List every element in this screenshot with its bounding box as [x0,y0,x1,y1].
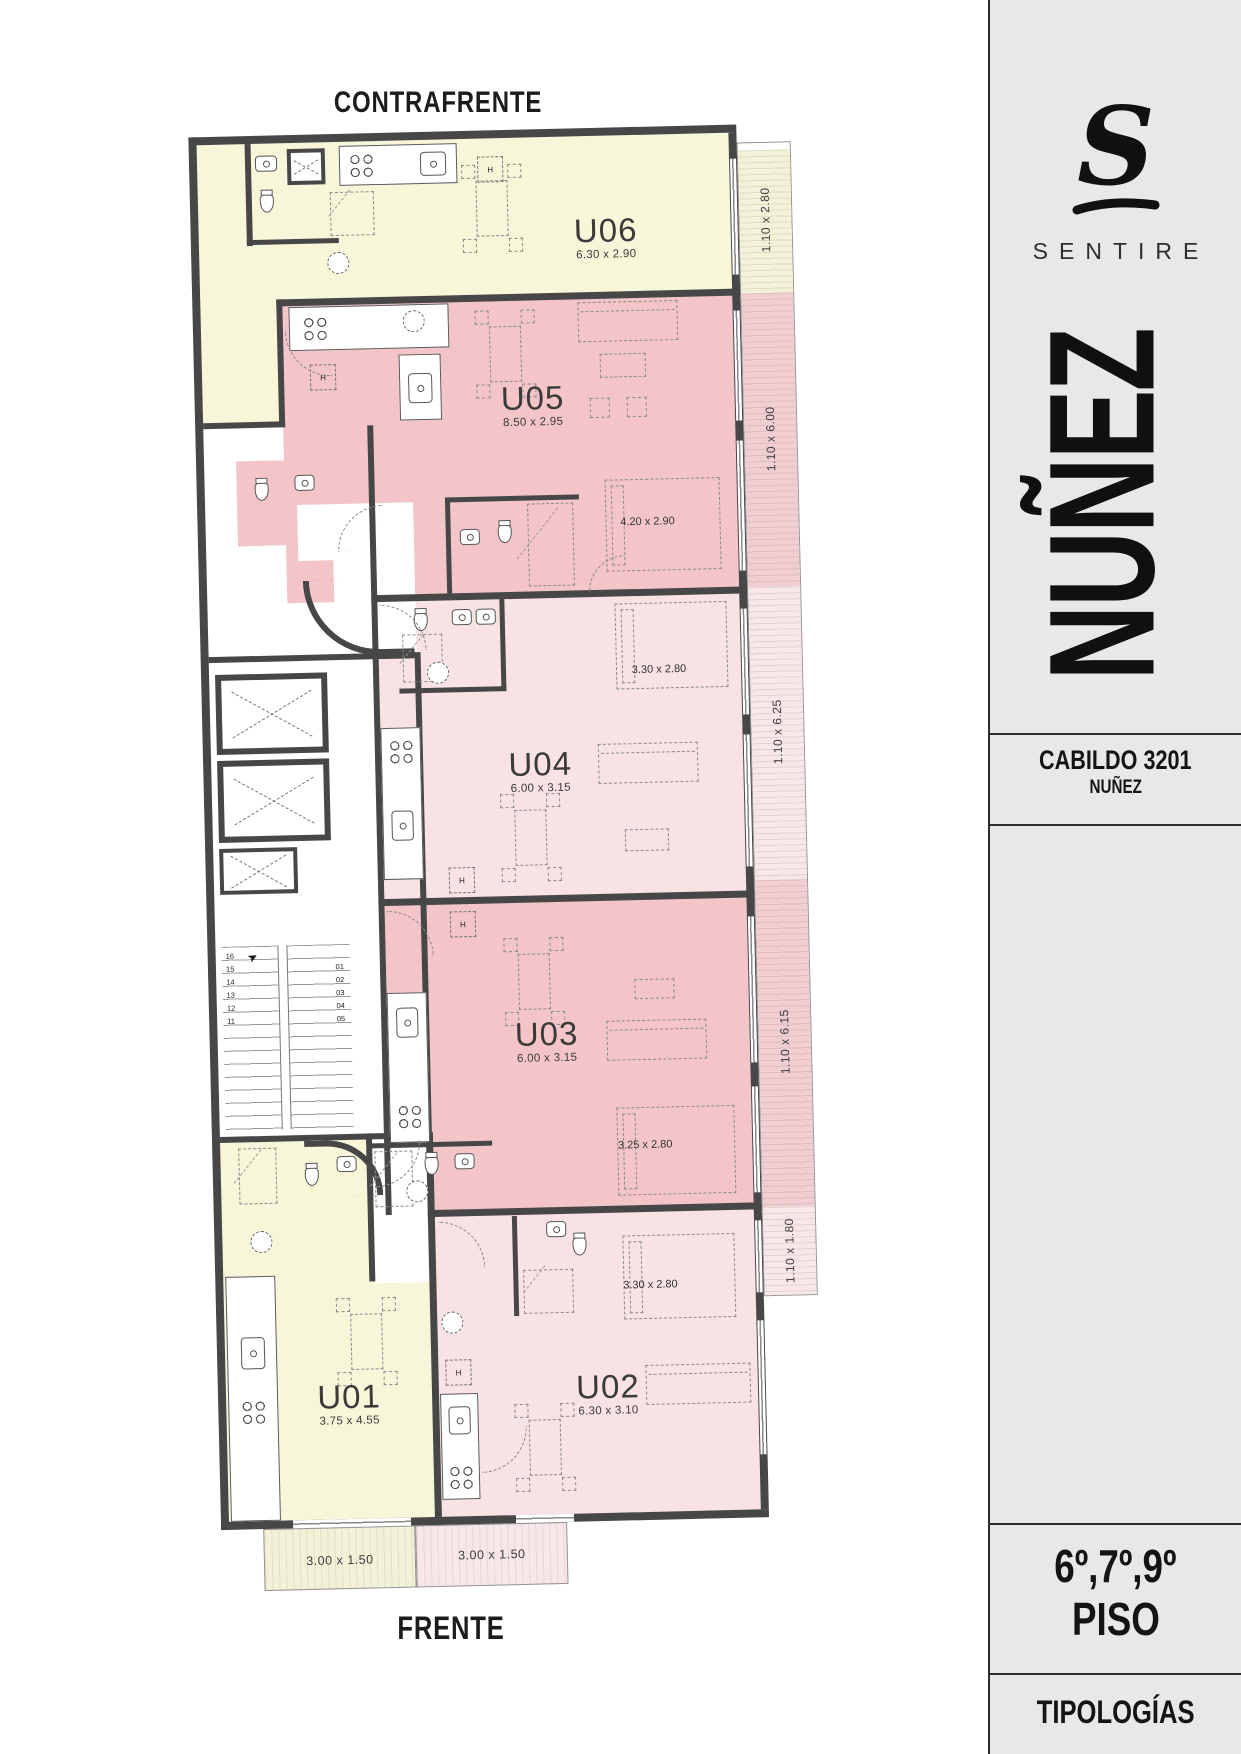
dining-set [514,1401,576,1494]
bed [622,1233,736,1320]
sofa [606,1019,707,1061]
stair-step-number: 13 [226,992,235,1000]
unit-dims: 6.30 x 2.90 [574,248,638,261]
table [350,1313,383,1370]
chair [500,794,514,808]
floor-numbers: 6º,7º,9º [990,1541,1241,1592]
coffee-table [600,353,647,378]
unit-label-u01: U013.75 x 4.55 [317,1379,382,1427]
unit-u06-hall-area [200,303,283,427]
divider [990,1523,1241,1525]
sink-icon [460,529,480,545]
typology-sheet: { "palette":{ "wall":"#474747","ink":"#1… [0,0,1241,1754]
unit-u05-toilette-area [236,460,288,546]
kitchen-counter-u04 [380,727,424,880]
balcony-dim-label: 1.10 x 6.15 [777,1009,793,1074]
stair-step-number: 14 [226,979,235,987]
kitchen-counter-u03 [387,992,431,1143]
coffee-table [625,828,670,851]
room-dim-label: 4.20 x 2.90 [620,515,675,528]
stair-step-number: 15 [226,966,235,974]
divider [990,1673,1241,1675]
room-dim-label: 3.30 x 2.80 [623,1278,678,1291]
unit-label-u06: U066.30 x 2.90 [574,213,639,261]
chair [476,384,490,398]
table [518,953,551,1010]
table [475,180,508,237]
chair [509,238,523,252]
cooktop-icon [388,738,416,766]
unit-dims: 6.00 x 3.15 [515,1052,579,1065]
chair [548,867,562,881]
sink-icon [336,1156,356,1172]
address-street: CABILDO 3201 [990,746,1241,776]
divider [990,733,1241,735]
pillow [628,1241,643,1313]
unit-id: U05 [500,381,564,415]
sink-icon [420,151,447,176]
stair-step-number: 16 [226,953,235,961]
unit-id: U04 [508,747,572,781]
stair-step-number: 05 [337,1015,346,1023]
balcony-dim-label: 1.10 x 6.25 [770,699,786,764]
balcony-door [516,1514,574,1523]
divider [990,824,1241,826]
bed [614,601,728,690]
unit-dims: 3.75 x 4.55 [318,1414,382,1427]
sink-icon [452,609,472,625]
stair-step-number: 03 [336,989,345,997]
chair [560,1403,574,1417]
room-dim-label: 3.30 x 2.80 [632,663,687,676]
stair-step-number: 12 [227,1005,236,1013]
address-area-text: NUÑEZ [1089,777,1141,799]
room-dim-label: 3.25 x 2.80 [618,1138,673,1151]
sheet-type-text: TIPOLOGÍAS [1037,1694,1195,1731]
chair [514,1404,528,1418]
sofa [577,300,678,342]
unit-dims: 6.30 x 3.10 [577,1404,641,1417]
sink-icon [408,373,433,404]
shower-icon [523,1269,574,1314]
sink-icon [454,1153,474,1169]
shaft-cross-icon [232,690,311,739]
elevator-shaft [217,758,331,843]
chair [461,165,475,179]
address-street-text: CABILDO 3201 [1039,746,1191,776]
chair [546,793,560,807]
unit-id: U02 [576,1369,640,1403]
service-shaft [219,847,298,895]
armchair [627,397,647,417]
stair-step-number: 04 [336,1002,345,1010]
shaft-cross-icon [234,777,313,826]
logo-letter: S [1077,88,1155,210]
chair [382,1297,396,1311]
sink-icon [255,155,277,172]
sink-icon [391,810,414,841]
floor-word-text: PISO [1072,1592,1160,1647]
stair-direction-arrow-icon: ➤ [245,949,261,966]
shower-icon [238,1148,277,1205]
shower-icon [527,503,575,587]
chair [336,1298,350,1312]
closet-marker: H [449,867,476,894]
unit-id: U03 [514,1017,578,1051]
chair [562,1477,576,1491]
staircase: 16 15 14 13 12 11 01 02 03 04 05 ➤ [221,944,353,1131]
chair [507,164,521,178]
cooktop-icon [240,1399,268,1427]
cooktop-icon [396,1103,424,1131]
closet-marker: H [445,1359,472,1386]
sink-icon [476,608,496,624]
stair-stringer [277,945,291,1129]
vent-shaft [287,148,326,185]
stair-step-number: 11 [227,1018,235,1026]
kitchen-counter-u02 [440,1393,480,1500]
unit-id: U01 [317,1379,381,1413]
sofa [598,742,699,784]
chair [503,938,517,952]
cooktop-icon [448,1464,476,1492]
stair-step-number: 01 [336,963,345,971]
floor-numbers-text: 6º,7º,9º [1054,1541,1176,1592]
balcony-dim-label: 1.10 x 1.80 [782,1218,798,1283]
floor-plan: 1.10 x 2.80 1.10 x 6.00 1.10 x 6.25 1.10… [188,123,839,1642]
dining-set [500,791,562,884]
balcony-dim-label: 1.10 x 6.00 [763,406,779,471]
chair [521,309,535,323]
cooktop-icon [348,152,376,180]
unit-dims: 6.00 x 3.15 [509,782,573,795]
floors-block: 6º,7º,9º PISO [990,1541,1241,1647]
sink-icon [294,475,314,491]
closet-marker: H [450,911,477,938]
unit-label-u04: U046.00 x 3.15 [508,747,573,795]
balcony-dim-label: 3.00 x 1.50 [306,1552,374,1568]
elevator-shaft [215,672,329,755]
sink-icon [241,1337,266,1370]
unit-id: U06 [574,213,638,247]
address-area: NUÑEZ [990,777,1241,799]
dining-set [336,1295,398,1388]
sink-icon [546,1221,566,1237]
brand-name: SENTIRE [990,238,1241,265]
back-orientation-text: CONTRAFRENTE [334,86,542,120]
address-block: CABILDO 3201 NUÑEZ [990,746,1241,799]
chair [475,310,489,324]
wall-segment [203,421,285,429]
sidebar: S SENTIRE NUÑEZ CABILDO 3201 NUÑEZ 6º,7º… [988,0,1241,1754]
project-name: NUÑEZ [1016,329,1189,680]
dining-set [461,162,523,255]
chair [516,1478,530,1492]
unit-label-u03: U036.00 x 3.15 [514,1017,579,1065]
balcony-dim-label: 1.10 x 2.80 [758,187,774,252]
coffee-table [634,978,674,999]
shower-icon [330,191,375,236]
sink-icon [396,1007,419,1038]
back-orientation-label: CONTRAFRENTE [308,86,568,120]
table [489,326,522,383]
floor-word: PISO [990,1592,1241,1647]
chair [463,239,477,253]
table [514,809,547,866]
unit-label-u02: U026.30 x 3.10 [576,1369,641,1417]
table [529,1419,562,1476]
sofa [645,1363,751,1405]
chair [502,868,516,882]
stair-step-number: 02 [336,976,345,984]
chair [383,1371,397,1385]
unit-dims: 8.50 x 2.95 [501,416,565,429]
sheet-type-label: TIPOLOGÍAS [990,1694,1241,1731]
chair [549,937,563,951]
sink-icon [448,1406,471,1435]
kitchen-counter-u06 [339,143,458,186]
kitchen-island-u05 [399,354,443,421]
armchair [590,398,610,418]
kitchen-counter-u01 [225,1276,281,1522]
unit-label-u05: U058.50 x 2.95 [500,381,565,429]
sentire-logo-icon: S [1051,88,1181,228]
balcony-dim-label: 3.00 x 1.50 [458,1547,526,1563]
